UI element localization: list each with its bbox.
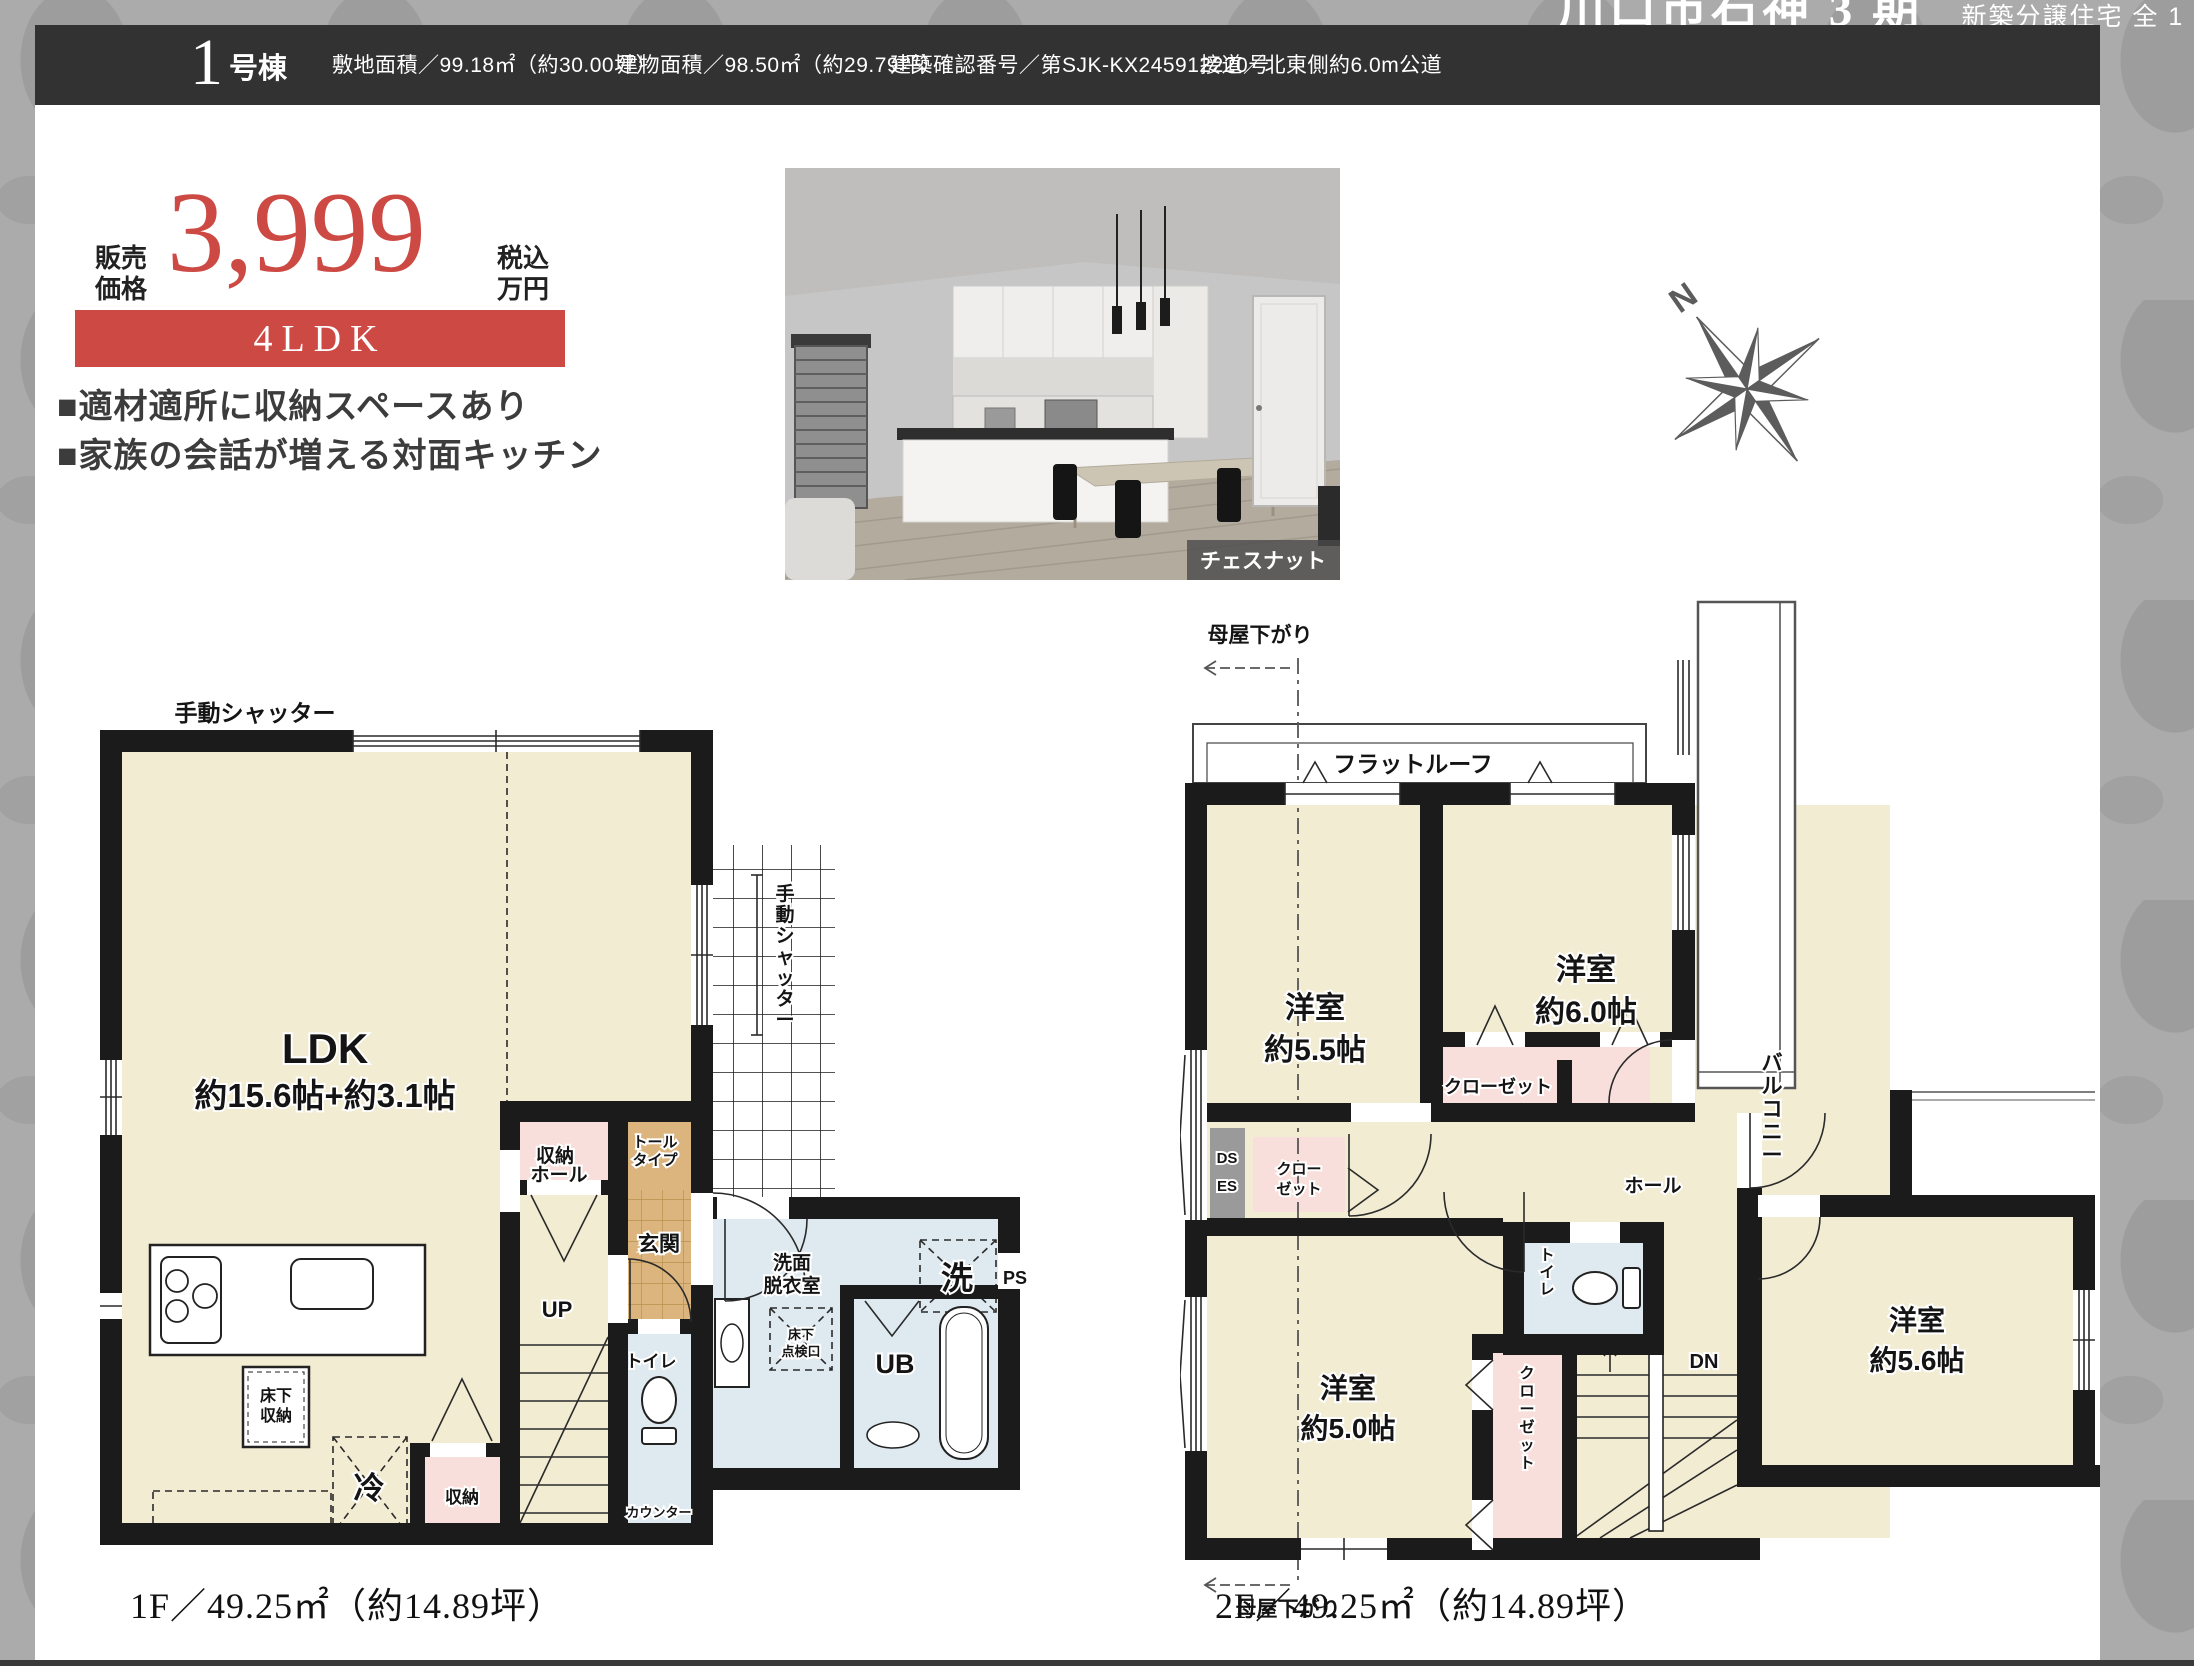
label-inspection-2: 点検口 — [781, 1344, 820, 1359]
kitchen-photo: チェスナット — [785, 168, 1340, 580]
label-room50-2: 約5.0帖 — [1301, 1412, 1396, 1444]
label-tall-2: タイプ — [632, 1152, 678, 1169]
label-hall-1f: ホール — [530, 1165, 587, 1186]
floorplan-2f: 母屋下がり フラットルーフ 洋室 約5.5帖 洋室 約6.0帖 バルコニー クロ… — [1180, 600, 2100, 1630]
label-underfloor-1: 床下 — [260, 1386, 292, 1405]
label-shutter-top: 手動シャッター — [175, 700, 336, 726]
header-bar: 1 号棟 敷地面積／99.18㎡（約30.00坪） 建物面積／98.50㎡（約2… — [35, 25, 2100, 105]
label-closet-left-1: クロー — [1276, 1161, 1321, 1178]
feature-1: ■適材適所に収納スペースあり — [57, 383, 603, 432]
spec-road: 接道／北東側約6.0m公道 — [1200, 25, 1442, 105]
unit-number-suffix: 号棟 — [229, 45, 287, 87]
label-ldk-size: 約15.6帖+約3.1帖 — [194, 1077, 455, 1114]
floorplan-1f: 手動シャッター LDK 約15.6帖+約3.1帖 収納 トール タイプ 玄関 ホ… — [95, 695, 1035, 1565]
label-storage-upper: 収納 — [536, 1144, 574, 1167]
label-room60-2: 約6.0帖 — [1535, 996, 1637, 1029]
flyer-panel: 1 号棟 敷地面積／99.18㎡（約30.00坪） 建物面積／98.50㎡（約2… — [35, 25, 2100, 1660]
photo-caption: チェスナット — [1187, 540, 1340, 580]
price-value: 3,999 — [167, 153, 426, 313]
label-moya-top: 母屋下がり — [1208, 623, 1313, 647]
label-washroom-1: 洗面 — [773, 1251, 811, 1274]
label-closet-left-2: ゼット — [1276, 1180, 1321, 1198]
label-ub: UB — [876, 1349, 915, 1379]
price-label: 販売 価格 — [95, 243, 147, 305]
label-underfloor-2: 収納 — [260, 1406, 292, 1425]
label-dn: DN — [1690, 1351, 1719, 1373]
layout-badge: 4LDK — [75, 310, 565, 367]
spec-land-area: 敷地面積／99.18㎡（約30.00坪） — [332, 25, 657, 105]
label-inspection-1: 床下 — [788, 1327, 814, 1342]
label-fridge: 冷 — [354, 1471, 385, 1506]
floor2-area-label: 2F／49.25㎡（約14.89坪） — [1215, 1577, 1649, 1629]
label-laundry: 洗 — [941, 1260, 973, 1296]
floor1-area-label: 1F／49.25㎡（約14.89坪） — [130, 1577, 564, 1629]
label-room56-1: 洋室 — [1889, 1304, 1945, 1336]
unit-number: 1 号棟 — [190, 25, 287, 105]
feature-list: ■適材適所に収納スペースあり ■家族の会話が増える対面キッチン — [57, 383, 603, 481]
label-room60-1: 洋室 — [1556, 953, 1616, 987]
window-blinds — [795, 346, 867, 508]
label-es: ES — [1217, 1178, 1237, 1195]
feature-2: ■家族の会話が増える対面キッチン — [57, 432, 603, 481]
label-storage-lower: 収納 — [445, 1487, 479, 1507]
compass-icon: N — [1647, 267, 1837, 477]
label-up: UP — [542, 1297, 573, 1322]
unit-number-value: 1 — [190, 25, 223, 101]
label-ps: PS — [1003, 1268, 1027, 1288]
sofa — [785, 498, 855, 580]
price-unit: 税込 万円 — [497, 243, 549, 305]
label-toilet-1f: トイレ — [626, 1352, 677, 1371]
label-tall-1: トール — [632, 1134, 677, 1151]
label-toilet-2f: トイレ — [1539, 1247, 1554, 1298]
label-shutter-right: 手動シャッター — [775, 882, 794, 1031]
label-counter: カウンター — [626, 1505, 691, 1520]
label-room50-1: 洋室 — [1320, 1372, 1376, 1404]
label-washroom-2: 脱衣室 — [763, 1274, 820, 1297]
label-balcony: バルコニー — [1762, 1052, 1783, 1167]
label-hall-2f: ホール — [1624, 1176, 1681, 1197]
label-ds: DS — [1217, 1150, 1238, 1167]
label-room55-1: 洋室 — [1285, 991, 1345, 1025]
compass-north-label: N — [1662, 275, 1704, 320]
label-closet-top: クローゼット — [1444, 1076, 1552, 1097]
label-closet-side: クローゼット — [1519, 1365, 1534, 1472]
photo-caption-text: チェスナット — [1200, 550, 1326, 573]
bottom-bar — [0, 1660, 2194, 1666]
tv-board — [1318, 486, 1340, 546]
label-flat-roof: フラットルーフ — [1333, 751, 1493, 777]
label-entrance: 玄関 — [638, 1232, 680, 1256]
label-ldk: LDK — [282, 1025, 368, 1072]
interior-door — [1253, 296, 1325, 506]
label-room56-2: 約5.6帖 — [1870, 1344, 1965, 1376]
label-room55-2: 約5.5帖 — [1264, 1034, 1366, 1067]
